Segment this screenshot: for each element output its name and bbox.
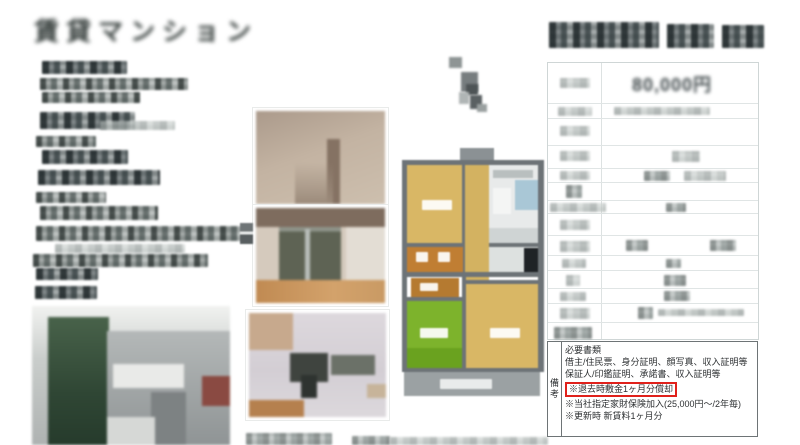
redacted-text-line: [42, 150, 128, 164]
table-row: [548, 304, 758, 323]
redacted-cell: [666, 259, 681, 268]
redacted-text-line: [36, 268, 98, 280]
photo-strip-fragment: [390, 437, 548, 445]
bathroom-zone: [489, 165, 538, 245]
required-docs-title: 必要書類: [565, 344, 755, 356]
redacted-text-line: [36, 192, 106, 203]
building-shadow: [151, 392, 187, 445]
fixture: [493, 170, 533, 178]
table-row: [548, 289, 758, 304]
closet-door: [420, 283, 438, 291]
wall: [538, 160, 544, 372]
table-row: [548, 214, 758, 236]
photo-strip-fragment: [246, 433, 332, 445]
tree-foliage: [48, 317, 109, 445]
building-lower-wall: [107, 417, 155, 445]
room-label-chip: [490, 328, 520, 338]
table-row: [548, 236, 758, 256]
balcony: [404, 372, 540, 396]
redacted-text-line: [36, 226, 248, 241]
room-tatami: [407, 301, 462, 368]
redacted-row-label: [558, 107, 592, 116]
photo-fragment: [240, 223, 253, 244]
rent-value: 80,000円: [632, 71, 712, 97]
redacted-row-label: [560, 241, 590, 252]
redacted-cell: [664, 291, 690, 301]
redacted-text-line: [100, 121, 175, 130]
flyer-page: 賃貸マンション: [0, 0, 800, 445]
room-label-chip: [422, 200, 452, 210]
building-wall-band: [113, 364, 184, 388]
remarks-box: 備考 必要書類 借主/住民票、身分証明、顔写真、収入証明等 保証人/印鑑証明、承…: [547, 341, 758, 437]
table-row: [548, 256, 758, 271]
photo-interior-1: [253, 108, 388, 207]
hallway: [465, 165, 489, 284]
table-row: [548, 119, 758, 146]
redacted-text-line: [42, 61, 127, 74]
table-row: [548, 201, 758, 214]
redacted-row-label: [550, 203, 606, 212]
redacted-row-label: [560, 126, 590, 136]
redacted-row-label: [560, 151, 590, 161]
wood-floor: [256, 280, 385, 303]
note-line: ※当社指定家財保険加入(25,000円〜/2年毎): [565, 398, 755, 410]
redacted-cell: [666, 203, 686, 212]
redacted-cell: [664, 275, 686, 286]
interior-upper-wall: [256, 208, 385, 227]
wall: [402, 272, 542, 277]
remarks-row-header: 備考: [548, 342, 562, 436]
required-docs-line: 保証人/印鑑証明、承諾書、収入証明等: [565, 368, 755, 380]
redacted-row-label: [560, 308, 590, 319]
table-row: [548, 271, 758, 289]
closet-strip: [411, 278, 459, 297]
redacted-text-line: [38, 170, 160, 185]
redacted-cell: [710, 240, 736, 251]
highlighted-note: ※退去時敷金1ヶ月分償却: [565, 382, 677, 397]
photo-strip-fragment: [352, 436, 390, 445]
room-bedroom-1: [407, 165, 463, 245]
table-row: [548, 183, 758, 201]
kitchen-appliance: [301, 375, 317, 398]
room-label-chip: [420, 328, 448, 338]
note-line: ※更新時 新賃料1ヶ月分: [565, 410, 755, 422]
redacted-header-block: [667, 24, 714, 48]
table-row: [548, 169, 758, 183]
kitchen-floor: [249, 400, 304, 417]
redacted-text-line: [36, 136, 96, 147]
redacted-text-line: [40, 206, 158, 220]
window-glass-door: [279, 227, 341, 282]
redacted-row-label: [566, 275, 580, 286]
redacted-cell: [644, 171, 670, 181]
table-row-rent: 80,000円: [548, 63, 758, 104]
redacted-cell: [658, 309, 744, 316]
fixture: [493, 188, 511, 214]
interior-shading: [295, 162, 334, 204]
photo-building-exterior: [32, 306, 230, 445]
redacted-row-label: [560, 292, 586, 301]
kitchen-detail: [367, 384, 386, 399]
spec-table: 80,000円: [547, 62, 759, 340]
table-row: [548, 323, 758, 341]
redacted-row-label: [554, 327, 592, 339]
redacted-text-line: [55, 244, 185, 253]
redacted-text-line: [33, 254, 208, 267]
kitchen-cabinet: [331, 355, 375, 376]
redacted-row-label: [560, 78, 590, 88]
room-shading: [407, 348, 462, 368]
closet-strip: [407, 247, 463, 272]
redacted-row-label: [560, 220, 590, 230]
redacted-header-block: [722, 25, 764, 48]
kitchen-zone: [489, 247, 538, 273]
floorplan: [398, 148, 548, 400]
balcony-label-chip: [440, 379, 492, 389]
required-docs-line: 借主/住民票、身分証明、顔写真、収入証明等: [565, 356, 755, 368]
listing-title: 賃貸マンション: [34, 12, 258, 48]
table-row: [548, 146, 758, 169]
redacted-row-label: [560, 171, 590, 180]
redacted-text-line: [35, 286, 97, 299]
closet-door: [438, 252, 450, 262]
remarks-content: 必要書類 借主/住民票、身分証明、顔写真、収入証明等 保証人/印鑑証明、承諾書、…: [562, 342, 757, 436]
redacted-cell: [638, 307, 653, 319]
table-row: [548, 104, 758, 119]
redacted-text-line: [42, 92, 140, 103]
building-red-detail: [202, 376, 230, 407]
photo-kitchen: [246, 310, 389, 420]
redacted-header-block: [549, 22, 659, 48]
bath-tile: [515, 180, 538, 210]
redacted-cell: [684, 171, 726, 181]
kitchen-upper-corner: [249, 313, 293, 350]
closet-door: [416, 252, 428, 262]
redacted-cell: [626, 240, 648, 251]
redacted-row-label: [562, 259, 586, 268]
interior-right-wall: [346, 227, 385, 280]
room-bedroom-2: [466, 284, 538, 370]
redacted-cell: [672, 151, 700, 162]
redacted-row-label: [566, 185, 582, 198]
photo-interior-2: [253, 205, 388, 306]
refrigerator: [524, 248, 538, 272]
redacted-text-line: [40, 78, 188, 90]
redacted-cell: [614, 107, 710, 115]
window-frame: [305, 229, 310, 282]
